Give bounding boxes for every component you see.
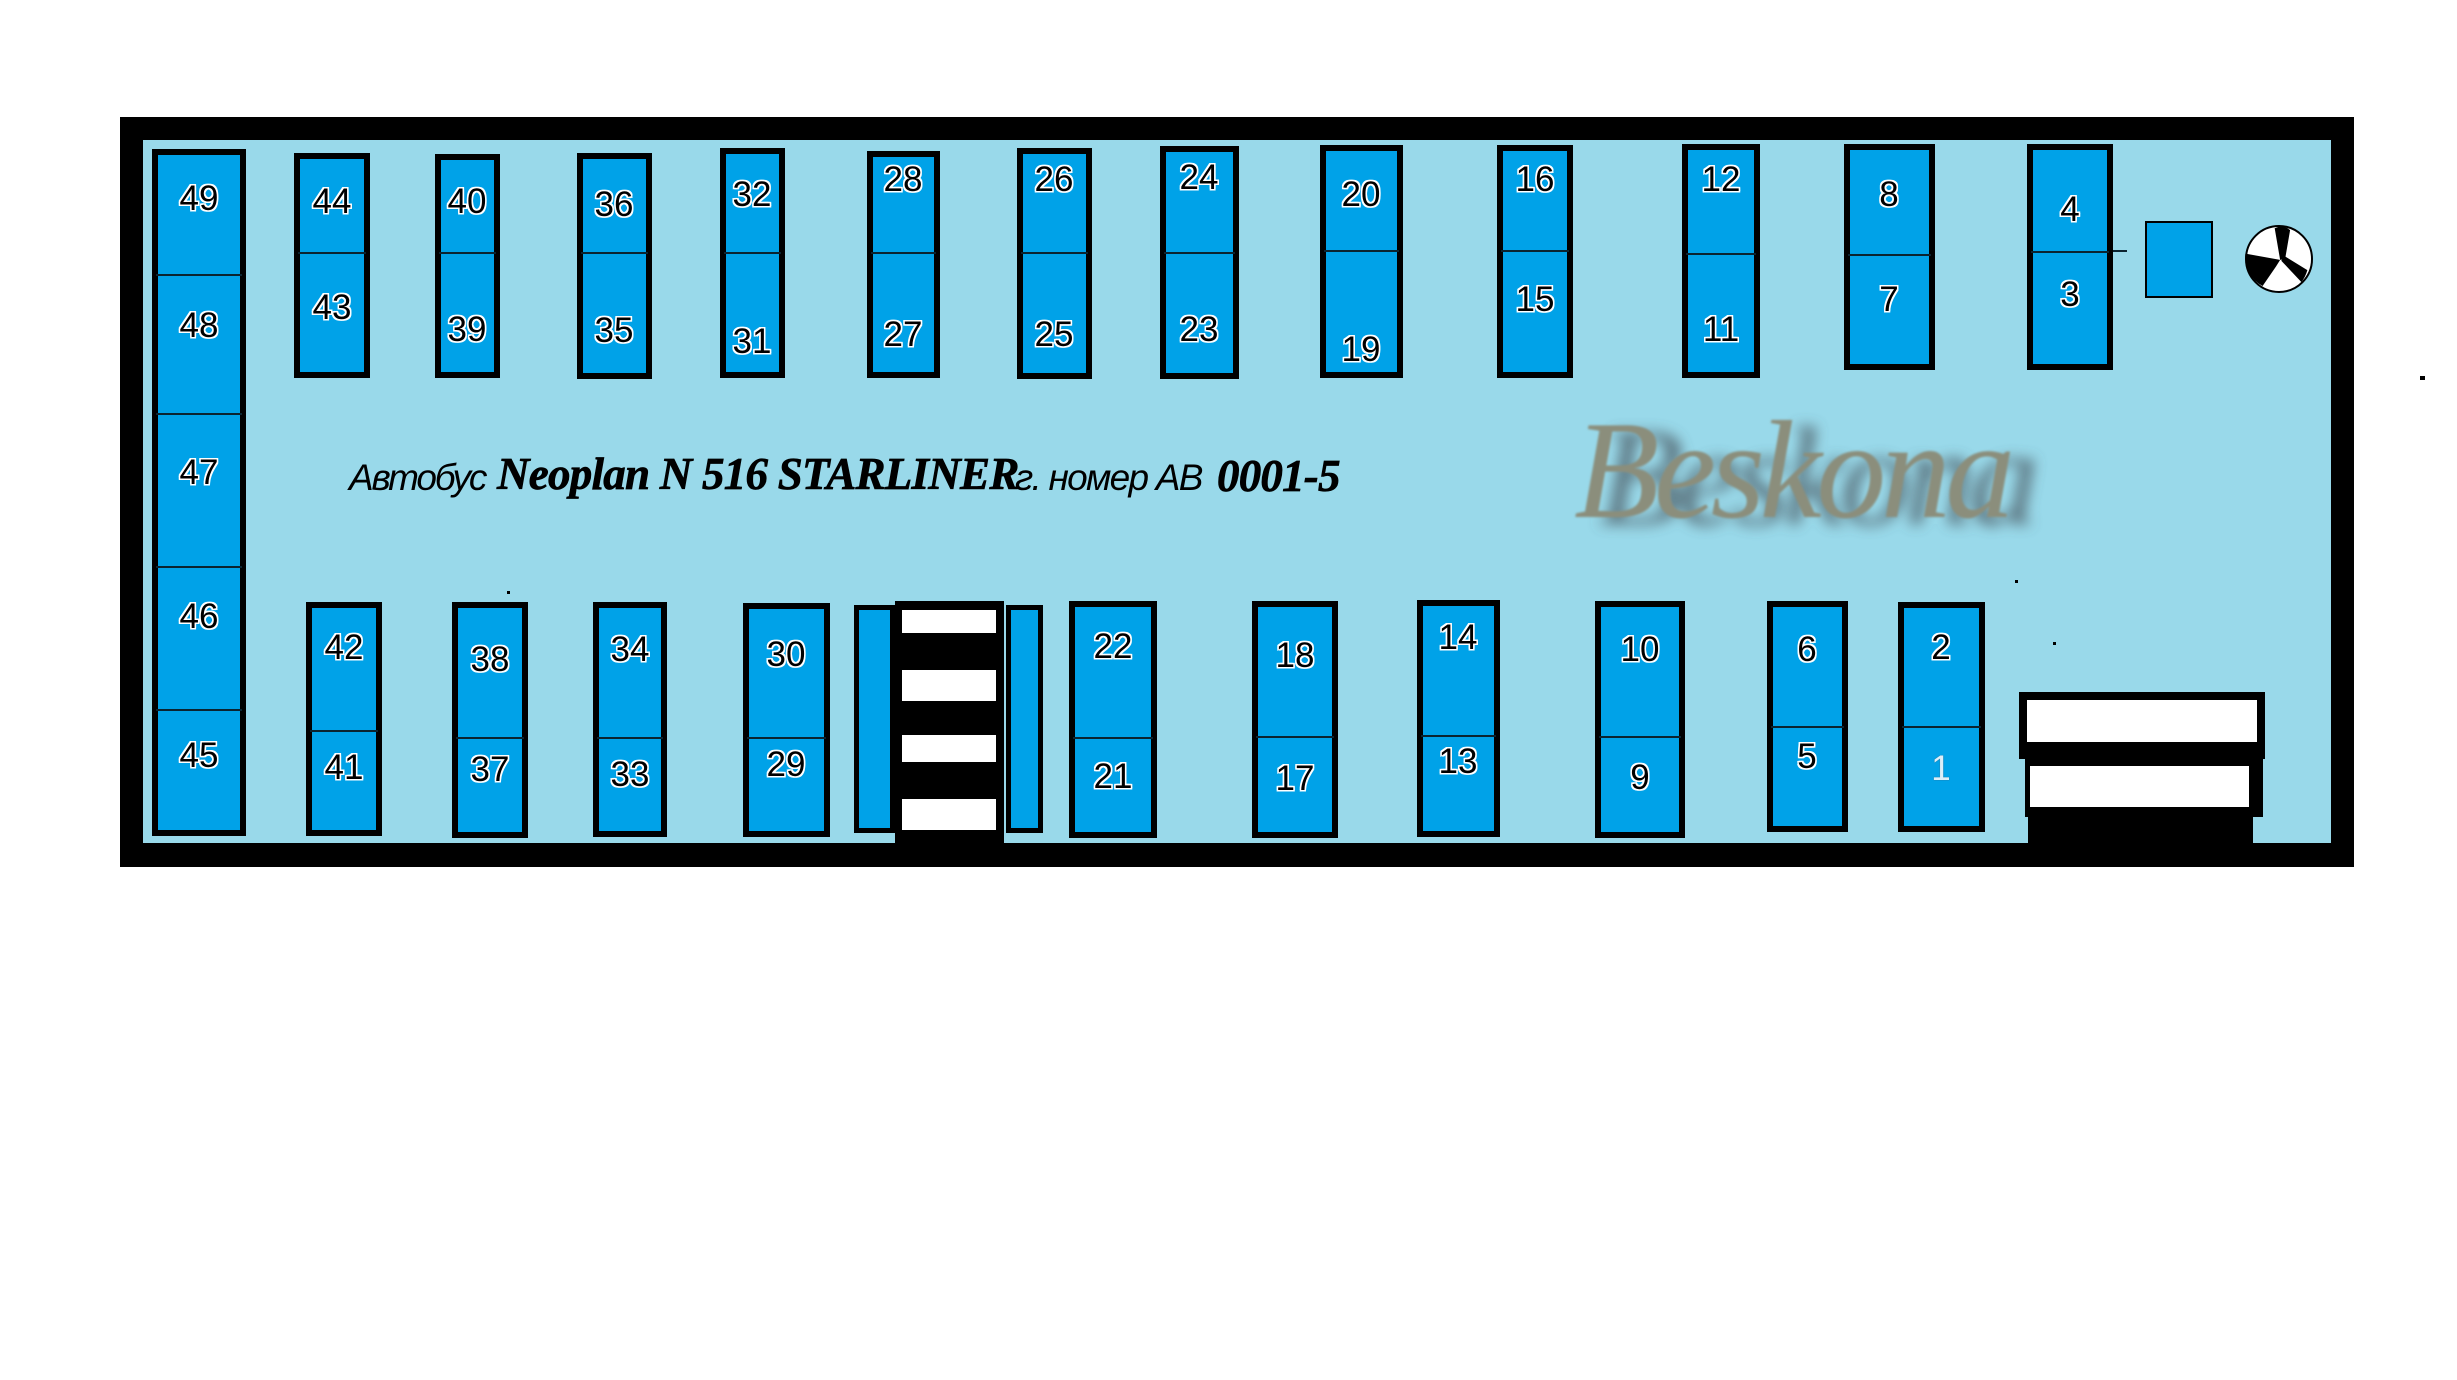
svg-text:Beskona: Beskona xyxy=(1574,393,2010,548)
